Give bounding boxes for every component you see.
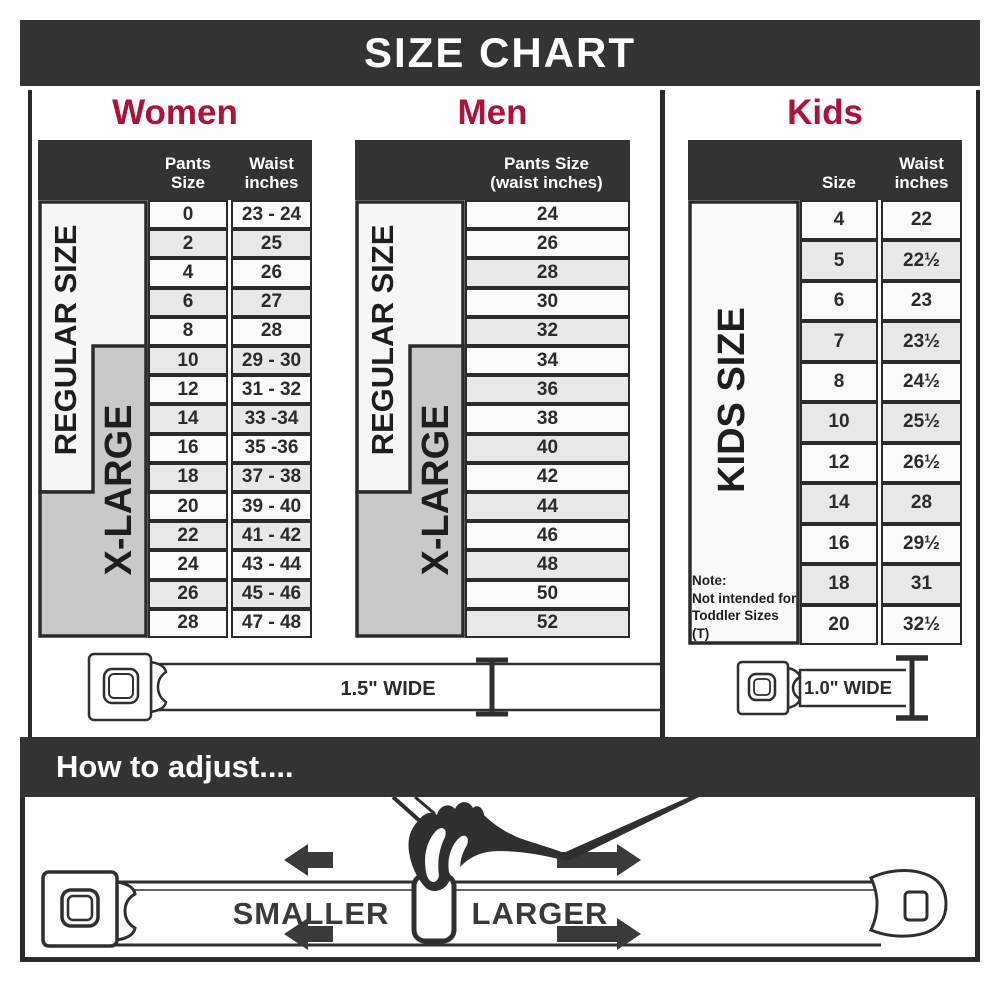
waist-cell: 32½ [881, 605, 962, 645]
table-row: 8 24½ [800, 362, 962, 402]
size-cell: 26 [465, 229, 630, 258]
size-cell: 26 [148, 580, 228, 609]
waist-cell: 29½ [881, 524, 962, 564]
women-size-bands: REGULAR SIZE X-LARGE [38, 200, 148, 638]
size-cell: 40 [465, 434, 630, 463]
size-cell: 42 [465, 463, 630, 492]
waist-cell: 28 [881, 483, 962, 523]
waist-cell: 35 -36 [231, 434, 312, 463]
women-pants-size-header: Pants Size [148, 154, 228, 193]
table-row: 24 [465, 200, 630, 229]
kids-section-title: Kids [688, 93, 962, 137]
kids-table-body: 4 22 5 22½ 6 23 7 23½ [800, 200, 962, 645]
waist-cell: 41 - 42 [231, 521, 312, 550]
seatbelt-buckle-icon [738, 662, 800, 714]
table-row: 5 22½ [800, 240, 962, 280]
waist-cell: 22 [881, 200, 962, 240]
waist-cell: 25½ [881, 402, 962, 442]
smaller-label: SMALLER [233, 896, 390, 931]
waist-cell: 47 - 48 [231, 609, 312, 638]
table-row: 4 22 [800, 200, 962, 240]
table-row: 44 [465, 492, 630, 521]
table-row: 52 [465, 609, 630, 638]
regular-size-label: REGULAR SIZE [365, 225, 400, 456]
table-row: 42 [465, 463, 630, 492]
waist-cell: 25 [231, 229, 312, 258]
table-row: 12 26½ [800, 443, 962, 483]
size-cell: 12 [800, 443, 878, 483]
table-row: 46 [465, 521, 630, 550]
table-row: 16 29½ [800, 524, 962, 564]
size-cell: 10 [800, 402, 878, 442]
size-cell: 22 [148, 521, 228, 550]
size-chart-page: SIZE CHART Women Men Kids Pants Size Wai… [0, 0, 1000, 1000]
size-cell: 10 [148, 346, 228, 375]
size-cell: 52 [465, 609, 630, 638]
size-cell: 8 [148, 317, 228, 346]
men-size-table: Pants Size (waist inches) REGULAR SIZE X… [355, 140, 630, 638]
size-cell: 7 [800, 321, 878, 361]
size-cell: 24 [465, 200, 630, 229]
table-row: 38 [465, 404, 630, 433]
adult-belt-width-label: 1.5" WIDE [340, 678, 435, 700]
size-cell: 6 [148, 288, 228, 317]
regular-size-label: REGULAR SIZE [48, 225, 83, 456]
table-row: 18 31 [800, 564, 962, 604]
waist-cell: 33 -34 [231, 404, 312, 433]
arrow-left-icon [284, 844, 333, 876]
size-cell: 4 [800, 200, 878, 240]
adult-belt-illustration: 1.5" WIDE [32, 648, 662, 736]
size-cell: 8 [800, 362, 878, 402]
table-row: 20 32½ [800, 605, 962, 645]
table-row: 40 [465, 434, 630, 463]
kids-belt-width-label: 1.0" WIDE [804, 677, 892, 698]
size-cell: 6 [800, 281, 878, 321]
waist-cell: 43 - 44 [231, 550, 312, 579]
table-row: 6 27 [148, 288, 312, 317]
table-row: 8 28 [148, 317, 312, 346]
table-row: 18 37 - 38 [148, 463, 312, 492]
kids-belt-illustration: 1.0" WIDE [690, 648, 960, 736]
size-cell: 38 [465, 404, 630, 433]
size-cell: 32 [465, 317, 630, 346]
table-row: 24 43 - 44 [148, 550, 312, 579]
table-row: 26 45 - 46 [148, 580, 312, 609]
seatbelt-buckle-icon [89, 654, 166, 720]
table-row: 10 29 - 30 [148, 346, 312, 375]
pinching-hand-icon [393, 797, 699, 891]
kids-table-header: Size Waist inches [688, 140, 962, 200]
men-table-body: 24 26 28 30 32 [465, 200, 630, 638]
table-row: 26 [465, 229, 630, 258]
size-cell: 5 [800, 240, 878, 280]
table-row: 20 39 - 40 [148, 492, 312, 521]
waist-cell: 27 [231, 288, 312, 317]
waist-cell: 22½ [881, 240, 962, 280]
waist-cell: 29 - 30 [231, 346, 312, 375]
table-row: 12 31 - 32 [148, 375, 312, 404]
table-row: 10 25½ [800, 402, 962, 442]
section-divider [660, 90, 665, 737]
size-cell: 12 [148, 375, 228, 404]
kids-note: Note: Not intended for Toddler Sizes (T) [692, 572, 798, 642]
waist-cell: 45 - 46 [231, 580, 312, 609]
waist-cell: 23 [881, 281, 962, 321]
kids-size-table: Size Waist inches KIDS SIZE Note: Not in… [688, 140, 962, 645]
waist-cell: 31 [881, 564, 962, 604]
men-pants-size-header: Pants Size (waist inches) [465, 154, 628, 193]
size-cell: 0 [148, 200, 228, 229]
table-row: 50 [465, 580, 630, 609]
men-size-bands: REGULAR SIZE X-LARGE [355, 200, 465, 638]
belt-illustration [45, 882, 881, 945]
table-row: 48 [465, 550, 630, 579]
x-large-label: X-LARGE [415, 405, 457, 576]
table-row: 32 [465, 317, 630, 346]
size-cell: 36 [465, 375, 630, 404]
tables-section: Women Men Kids Pants Size Waist inches R… [28, 90, 980, 737]
women-waist-header: Waist inches [231, 154, 312, 193]
size-cell: 16 [148, 434, 228, 463]
kids-waist-header: Waist inches [881, 154, 962, 193]
size-cell: 2 [148, 229, 228, 258]
how-to-adjust-heading: How to adjust.... [56, 749, 294, 785]
table-row: 36 [465, 375, 630, 404]
table-row: 14 33 -34 [148, 404, 312, 433]
size-cell: 16 [800, 524, 878, 564]
arrow-right-icon [557, 844, 641, 876]
size-cell: 28 [465, 258, 630, 287]
waist-cell: 26½ [881, 443, 962, 483]
size-cell: 14 [148, 404, 228, 433]
size-cell: 50 [465, 580, 630, 609]
x-large-label: X-LARGE [98, 405, 140, 576]
women-size-table: Pants Size Waist inches REGULAR SIZE X-L… [38, 140, 312, 638]
size-cell: 20 [800, 605, 878, 645]
adjust-illustration: SMALLER LARGER [20, 797, 980, 962]
size-cell: 44 [465, 492, 630, 521]
how-to-adjust-band: How to adjust.... [20, 737, 980, 797]
kids-size-label: KIDS SIZE [711, 307, 753, 493]
women-section-title: Women [38, 93, 312, 137]
table-row: 6 23 [800, 281, 962, 321]
waist-cell: 28 [231, 317, 312, 346]
table-row: 2 25 [148, 229, 312, 258]
belt-tip-icon [871, 871, 946, 937]
table-row: 0 23 - 24 [148, 200, 312, 229]
table-row: 28 [465, 258, 630, 287]
waist-cell: 23½ [881, 321, 962, 361]
kids-size-header: Size [800, 173, 878, 193]
table-row: 16 35 -36 [148, 434, 312, 463]
seatbelt-buckle-icon [43, 872, 135, 946]
size-cell: 18 [800, 564, 878, 604]
waist-cell: 24½ [881, 362, 962, 402]
title-bar: SIZE CHART [20, 20, 980, 86]
table-row: 30 [465, 288, 630, 317]
page-title: SIZE CHART [364, 29, 636, 77]
size-cell: 48 [465, 550, 630, 579]
men-table-header: Pants Size (waist inches) [355, 140, 630, 200]
men-section-title: Men [355, 93, 630, 137]
waist-cell: 26 [231, 258, 312, 287]
women-table-body: 0 23 - 24 2 25 4 26 6 2 [148, 200, 312, 638]
waist-cell: 37 - 38 [231, 463, 312, 492]
waist-cell: 23 - 24 [231, 200, 312, 229]
table-row: 14 28 [800, 483, 962, 523]
women-table-header: Pants Size Waist inches [38, 140, 312, 200]
size-cell: 4 [148, 258, 228, 287]
larger-label: LARGER [472, 896, 609, 931]
table-row: 22 41 - 42 [148, 521, 312, 550]
size-cell: 24 [148, 550, 228, 579]
size-cell: 30 [465, 288, 630, 317]
size-cell: 34 [465, 346, 630, 375]
size-cell: 46 [465, 521, 630, 550]
size-cell: 14 [800, 483, 878, 523]
table-row: 28 47 - 48 [148, 609, 312, 638]
waist-cell: 31 - 32 [231, 375, 312, 404]
size-cell: 20 [148, 492, 228, 521]
table-row: 4 26 [148, 258, 312, 287]
size-cell: 18 [148, 463, 228, 492]
waist-cell: 39 - 40 [231, 492, 312, 521]
size-cell: 28 [148, 609, 228, 638]
table-row: 34 [465, 346, 630, 375]
table-row: 7 23½ [800, 321, 962, 361]
